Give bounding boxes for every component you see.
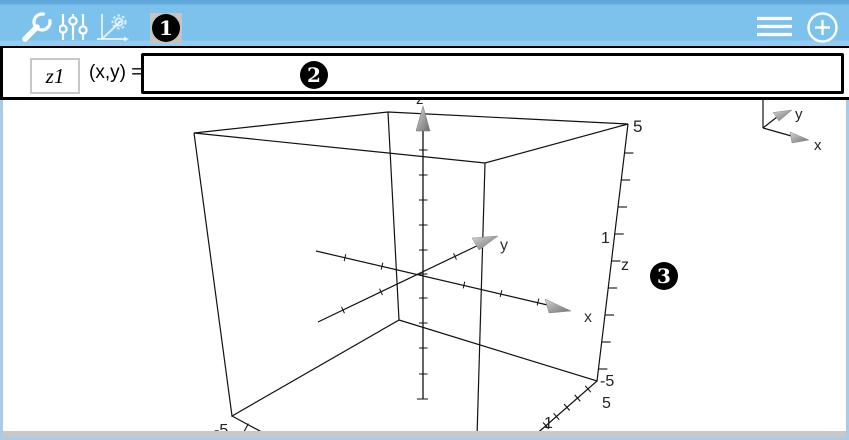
callout-3: 3 xyxy=(650,262,678,290)
mini-y-label: y xyxy=(795,106,803,123)
z-max-label: 5 xyxy=(633,117,642,136)
z-top-label: z xyxy=(416,100,424,108)
function-signature-label: (x,y) = xyxy=(89,48,148,97)
y-edge-unit-label: 1 xyxy=(544,415,553,432)
graph-3d-view[interactable]: z 5 1 z -5 5 1 -5 x y y x xyxy=(0,100,849,440)
box-wireframe xyxy=(194,112,628,437)
x-axis-arrowhead xyxy=(545,299,571,313)
expression-input[interactable] xyxy=(141,53,844,94)
y-edge-max-label: 5 xyxy=(602,395,611,412)
wrench-glyph xyxy=(25,9,54,39)
sliders-glyph xyxy=(59,14,86,40)
callout-1: 1 xyxy=(152,14,180,42)
plus-circle-glyph xyxy=(809,14,837,42)
y-axis xyxy=(318,236,498,322)
mini-x-arrowhead xyxy=(790,132,809,143)
mini-y-arrowhead xyxy=(773,110,792,121)
graph-gear-glyph xyxy=(97,14,129,42)
wrench-icon[interactable] xyxy=(16,9,54,43)
hamburger-glyph xyxy=(757,19,792,35)
callout-2: 2 xyxy=(300,61,328,89)
function-name: z1 xyxy=(46,64,65,89)
mini-x-label: x xyxy=(814,137,822,154)
z-min-label: -5 xyxy=(600,373,614,390)
graph-canvas[interactable]: z 5 1 z -5 5 1 -5 x y y x xyxy=(0,100,849,440)
ti-nspire-screen: 1 z1 (x,y) = 2 xyxy=(0,0,849,440)
z-axis-arrowhead xyxy=(416,106,430,131)
x-axis xyxy=(316,251,571,313)
y-axis-label: y xyxy=(500,237,508,254)
y-axis-arrowhead xyxy=(472,236,498,250)
sliders-icon[interactable] xyxy=(59,13,89,43)
function-name-box[interactable]: z1 xyxy=(30,58,80,94)
z-edge-name-label: z xyxy=(621,257,629,274)
toolbar: 1 xyxy=(0,0,849,46)
page-frame-left xyxy=(0,100,3,440)
graph-gear-icon[interactable] xyxy=(96,12,130,43)
entry-line-row: z1 (x,y) = 2 xyxy=(0,46,849,100)
z-axis xyxy=(416,106,430,399)
plus-circle-icon[interactable] xyxy=(806,11,839,44)
x-axis-label: x xyxy=(584,309,592,326)
orientation-indicator: y x xyxy=(763,100,822,154)
z-unit-label: 1 xyxy=(601,230,610,247)
hamburger-menu-icon[interactable] xyxy=(756,16,794,37)
